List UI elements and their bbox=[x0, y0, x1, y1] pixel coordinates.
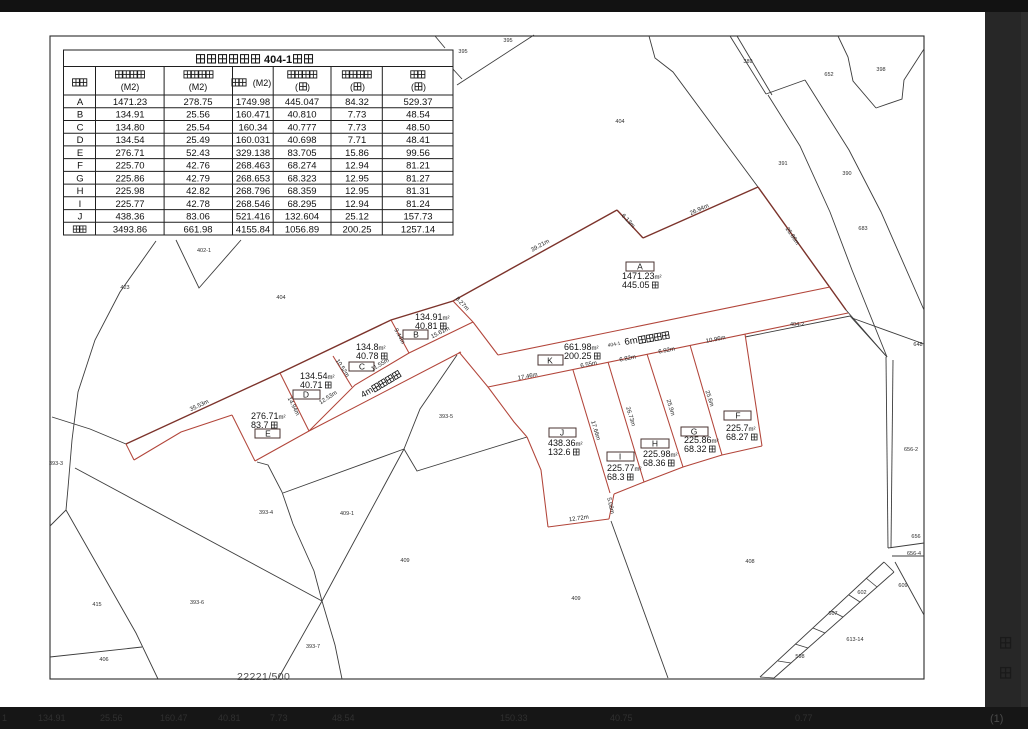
svg-text:404: 404 bbox=[615, 119, 624, 125]
svg-text:402-1: 402-1 bbox=[197, 248, 211, 254]
svg-text:409: 409 bbox=[571, 596, 580, 602]
svg-text:B: B bbox=[413, 330, 419, 340]
svg-text:(: ( bbox=[350, 82, 353, 92]
svg-text:225.98: 225.98 bbox=[115, 186, 144, 197]
svg-text:329.138: 329.138 bbox=[236, 148, 270, 159]
svg-text:): ) bbox=[423, 82, 426, 92]
svg-text:84.32: 84.32 bbox=[345, 97, 369, 108]
svg-text:42.79: 42.79 bbox=[186, 173, 210, 184]
svg-text:68.36: 68.36 bbox=[643, 458, 666, 468]
svg-text:68.3: 68.3 bbox=[607, 472, 625, 482]
svg-text:48.54: 48.54 bbox=[332, 713, 355, 723]
svg-text:656: 656 bbox=[911, 534, 920, 540]
svg-text:661.98: 661.98 bbox=[183, 224, 212, 235]
svg-text:225.86: 225.86 bbox=[115, 173, 144, 184]
svg-text:157.73: 157.73 bbox=[403, 212, 432, 223]
svg-text:393-5: 393-5 bbox=[439, 414, 453, 420]
svg-text:J: J bbox=[78, 212, 83, 223]
svg-text:683: 683 bbox=[858, 226, 867, 232]
svg-text:134.54: 134.54 bbox=[115, 135, 144, 146]
svg-text:D: D bbox=[77, 135, 84, 146]
svg-text:268.546: 268.546 bbox=[236, 199, 270, 210]
svg-text:1471.23: 1471.23 bbox=[113, 97, 147, 108]
svg-text:160.34: 160.34 bbox=[238, 123, 267, 134]
svg-text:134.91: 134.91 bbox=[115, 110, 144, 121]
svg-text:602: 602 bbox=[857, 590, 866, 596]
svg-text:393-6: 393-6 bbox=[190, 600, 204, 606]
svg-text:68.323: 68.323 bbox=[287, 173, 316, 184]
svg-text:40.81: 40.81 bbox=[415, 321, 438, 331]
svg-text:648: 648 bbox=[913, 342, 922, 348]
svg-text:134.80: 134.80 bbox=[115, 123, 144, 134]
svg-text:7.73: 7.73 bbox=[270, 713, 288, 723]
svg-text:I: I bbox=[619, 452, 621, 462]
svg-text:): ) bbox=[307, 82, 310, 92]
svg-text:6m: 6m bbox=[624, 335, 639, 348]
svg-text:406: 406 bbox=[99, 657, 108, 663]
svg-text:83.06: 83.06 bbox=[186, 212, 210, 223]
svg-text:42.82: 42.82 bbox=[186, 186, 210, 197]
svg-text:A: A bbox=[637, 262, 643, 272]
svg-text:40.81: 40.81 bbox=[218, 713, 241, 723]
svg-text:0.77: 0.77 bbox=[795, 713, 813, 723]
svg-text:40.71: 40.71 bbox=[300, 380, 323, 390]
svg-text:25.12: 25.12 bbox=[345, 212, 369, 223]
svg-text:423: 423 bbox=[120, 285, 129, 291]
svg-text:613-14: 613-14 bbox=[846, 637, 863, 643]
svg-text:529.37: 529.37 bbox=[403, 97, 432, 108]
svg-text:C: C bbox=[77, 123, 84, 134]
svg-text:390: 390 bbox=[842, 171, 851, 177]
svg-text:(M2): (M2) bbox=[189, 82, 208, 92]
svg-text:83.705: 83.705 bbox=[287, 148, 316, 159]
svg-text:598: 598 bbox=[795, 654, 804, 660]
svg-text:398: 398 bbox=[876, 67, 885, 73]
svg-text:4155.84: 4155.84 bbox=[236, 224, 270, 235]
svg-text:393-4: 393-4 bbox=[259, 510, 273, 516]
svg-text:25.56: 25.56 bbox=[100, 713, 123, 723]
svg-text:268.463: 268.463 bbox=[236, 161, 270, 172]
svg-text:68.274: 68.274 bbox=[287, 161, 316, 172]
svg-text:40.777: 40.777 bbox=[287, 123, 316, 134]
svg-text:99.56: 99.56 bbox=[406, 148, 430, 159]
svg-text:393-3: 393-3 bbox=[49, 461, 63, 467]
svg-text:H: H bbox=[652, 439, 658, 449]
svg-text:J: J bbox=[560, 428, 564, 438]
svg-text:81.27: 81.27 bbox=[406, 173, 430, 184]
svg-text:12.95: 12.95 bbox=[345, 186, 369, 197]
svg-text:404: 404 bbox=[276, 295, 285, 301]
svg-text:1: 1 bbox=[2, 713, 7, 723]
svg-text:268.796: 268.796 bbox=[236, 186, 270, 197]
svg-text:225.70: 225.70 bbox=[115, 161, 144, 172]
svg-text:F: F bbox=[77, 161, 83, 172]
svg-text:415: 415 bbox=[92, 602, 101, 608]
svg-text:12.95: 12.95 bbox=[345, 173, 369, 184]
svg-text:25.54: 25.54 bbox=[186, 123, 210, 134]
svg-text:652: 652 bbox=[824, 72, 833, 78]
svg-text:389: 389 bbox=[743, 59, 752, 65]
svg-text:445.05: 445.05 bbox=[622, 280, 650, 290]
svg-text:(: ( bbox=[295, 82, 298, 92]
svg-text:48.41: 48.41 bbox=[406, 135, 430, 146]
svg-text:25.56: 25.56 bbox=[186, 110, 210, 121]
svg-text:68.27: 68.27 bbox=[726, 432, 749, 442]
svg-text:C: C bbox=[359, 362, 365, 372]
svg-text:83.7: 83.7 bbox=[251, 420, 269, 430]
svg-text:48.50: 48.50 bbox=[406, 123, 430, 134]
svg-text:68.295: 68.295 bbox=[287, 199, 316, 210]
svg-text:81.31: 81.31 bbox=[406, 186, 430, 197]
svg-text:438.36: 438.36 bbox=[115, 212, 144, 223]
svg-text:22221/500: 22221/500 bbox=[237, 671, 290, 683]
svg-text:40.810: 40.810 bbox=[287, 110, 316, 121]
svg-text:445.047: 445.047 bbox=[285, 97, 319, 108]
svg-text:12.94: 12.94 bbox=[345, 199, 369, 210]
svg-text:132.604: 132.604 bbox=[285, 212, 319, 223]
svg-text:K: K bbox=[547, 356, 553, 366]
svg-text:1056.89: 1056.89 bbox=[285, 224, 319, 235]
svg-text:): ) bbox=[362, 82, 365, 92]
svg-text:609: 609 bbox=[898, 583, 907, 589]
svg-text:40.75: 40.75 bbox=[610, 713, 633, 723]
svg-text:F: F bbox=[735, 411, 740, 421]
svg-text:395: 395 bbox=[458, 49, 467, 55]
svg-text:391: 391 bbox=[778, 161, 787, 167]
svg-text:7.73: 7.73 bbox=[348, 110, 367, 121]
svg-text:150.33: 150.33 bbox=[500, 713, 528, 723]
svg-text:D: D bbox=[303, 390, 309, 400]
svg-text:25.49: 25.49 bbox=[186, 135, 210, 146]
svg-text:40.78: 40.78 bbox=[356, 351, 379, 361]
svg-text:40.698: 40.698 bbox=[287, 135, 316, 146]
svg-text:81.21: 81.21 bbox=[406, 161, 430, 172]
svg-text:276.71: 276.71 bbox=[115, 148, 144, 159]
svg-text:E: E bbox=[265, 429, 271, 439]
svg-text:(: ( bbox=[411, 82, 414, 92]
svg-text:68.359: 68.359 bbox=[287, 186, 316, 197]
svg-text:160.47: 160.47 bbox=[160, 713, 188, 723]
svg-text:A: A bbox=[77, 97, 84, 108]
svg-text:656-4: 656-4 bbox=[907, 551, 921, 557]
svg-text:521.416: 521.416 bbox=[236, 212, 270, 223]
svg-text:H: H bbox=[77, 186, 84, 197]
svg-text:132.6: 132.6 bbox=[548, 447, 571, 457]
svg-text:3493.86: 3493.86 bbox=[113, 224, 147, 235]
svg-text:656-2: 656-2 bbox=[904, 447, 918, 453]
svg-text:42.78: 42.78 bbox=[186, 199, 210, 210]
svg-text:395: 395 bbox=[503, 38, 512, 44]
svg-text:408: 408 bbox=[745, 559, 754, 565]
svg-text:(M2): (M2) bbox=[253, 78, 272, 88]
svg-text:404-1: 404-1 bbox=[264, 54, 292, 66]
svg-text:(1): (1) bbox=[990, 713, 1003, 725]
svg-text:I: I bbox=[79, 199, 82, 210]
svg-text:B: B bbox=[77, 110, 83, 121]
svg-text:160.471: 160.471 bbox=[236, 110, 270, 121]
svg-text:G: G bbox=[76, 173, 83, 184]
svg-text:52.43: 52.43 bbox=[186, 148, 210, 159]
svg-text:1257.14: 1257.14 bbox=[401, 224, 435, 235]
svg-text:(M2): (M2) bbox=[121, 82, 140, 92]
svg-text:409: 409 bbox=[400, 558, 409, 564]
svg-text:268.653: 268.653 bbox=[236, 173, 270, 184]
svg-text:7.71: 7.71 bbox=[348, 135, 367, 146]
svg-text:160.031: 160.031 bbox=[236, 135, 270, 146]
svg-text:81.24: 81.24 bbox=[406, 199, 430, 210]
svg-text:225.77: 225.77 bbox=[115, 199, 144, 210]
svg-text:7.73: 7.73 bbox=[348, 123, 367, 134]
svg-text:E: E bbox=[77, 148, 83, 159]
svg-text:68.32: 68.32 bbox=[684, 444, 707, 454]
svg-text:409-1: 409-1 bbox=[340, 511, 354, 517]
svg-text:48.54: 48.54 bbox=[406, 110, 430, 121]
svg-text:1749.98: 1749.98 bbox=[236, 97, 270, 108]
svg-text:278.75: 278.75 bbox=[183, 97, 212, 108]
svg-text:200.25: 200.25 bbox=[342, 224, 371, 235]
svg-text:404-2: 404-2 bbox=[790, 322, 804, 328]
svg-text:134.91: 134.91 bbox=[38, 713, 66, 723]
svg-text:12.94: 12.94 bbox=[345, 161, 369, 172]
svg-text:15.86: 15.86 bbox=[345, 148, 369, 159]
svg-text:607: 607 bbox=[828, 611, 837, 617]
svg-text:42.76: 42.76 bbox=[186, 161, 210, 172]
svg-text:200.25: 200.25 bbox=[564, 351, 592, 361]
svg-text:393-7: 393-7 bbox=[306, 644, 320, 650]
